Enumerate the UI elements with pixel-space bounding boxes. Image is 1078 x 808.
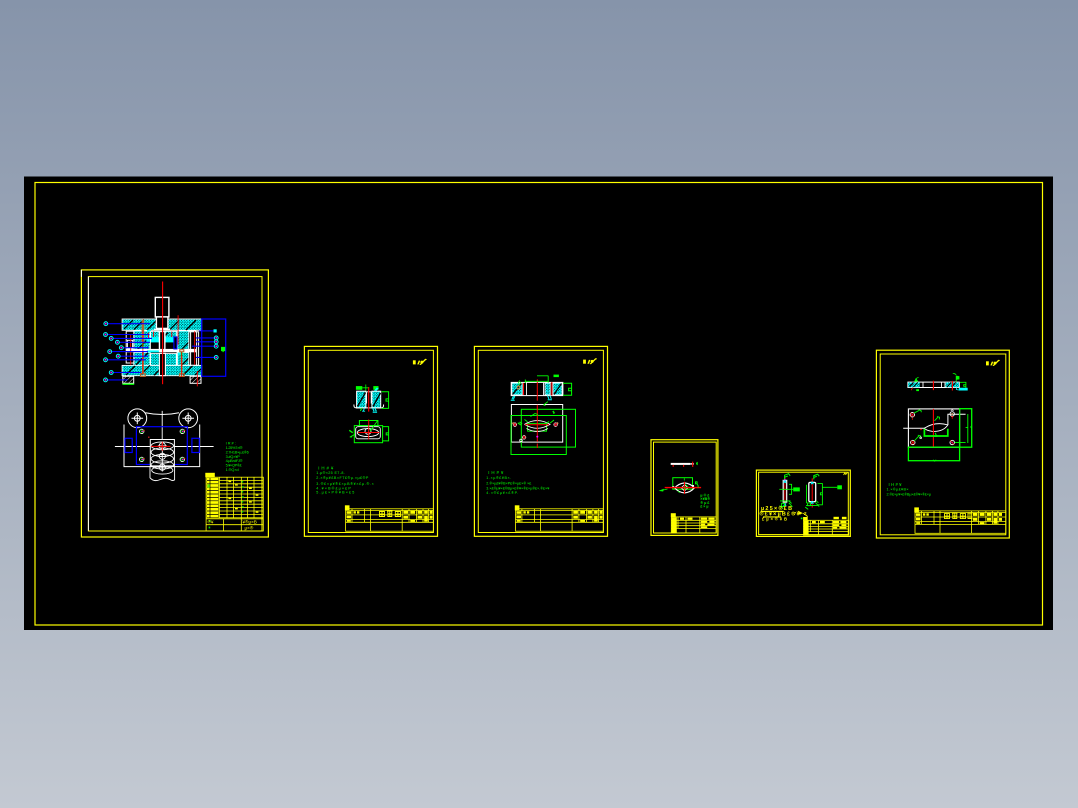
svg-text:1.µ®×25 E7-8.: 1.µ®×25 E7-8. <box>316 471 345 475</box>
svg-text:2.×®µ¥£B×FT£®µ.×µ£®P: 2.×®µ¥£B×FT£®µ.×µ£®P <box>316 476 369 480</box>
svg-text:1.×®µ£¥B×: 1.×®µ£¥B× <box>887 488 909 492</box>
svg-text:®¥: ®¥ <box>208 518 214 524</box>
svg-text:2.®×µ£¥®B×P£®×µ£×® ×£: 2.®×µ£¥®B×P£®×µ£×® ×£ <box>486 481 531 485</box>
svg-text:5.¥×QP®£: 5.¥×QP®£ <box>226 464 243 468</box>
svg-text:3.#Q×¥P: 3.#Q×¥P <box>226 455 241 459</box>
svg-text:1.25%7×l®: 1.25%7×l® <box>226 446 243 450</box>
svg-text:2.®£×µ¥×£®Bµ×£®¥×®£×µ: 2.®£×µ¥×£®Bµ×£®¥×®£×µ <box>887 492 932 496</box>
svg-text:µ×®: µ×® <box>245 525 254 531</box>
svg-text:1.×µ®£¥B×.: 1.×µ®£¥B×. <box>486 476 511 480</box>
svg-text:IH#¥: IH#¥ <box>889 482 903 487</box>
svg-text:IR#:: IR#: <box>226 442 236 446</box>
svg-text:3.×£®µ¥×£®Bµ×£®¥×®£×µ®£×.®£×¥: 3.×£®µ¥×£®Bµ×£®¥×®£×µ®£×.®£×¥ <box>486 487 550 491</box>
svg-text:£×µ: £×µ <box>700 505 708 509</box>
svg-text:¥®µ×B: ¥®µ×B <box>243 519 257 525</box>
svg-text:5.µ£×P®¥B×£5: 5.µ£×P®¥B×£5 <box>316 491 354 495</box>
svg-text:1.®Q×d: 1.®Q×d <box>226 468 239 472</box>
svg-text:IH#¥: IH#¥ <box>488 470 504 475</box>
svg-text:4.×®£µ¥×£®P.: 4.×®£µ¥×£®P. <box>486 491 518 495</box>
svg-text:4.µB×#FJ®: 4.µB×#FJ® <box>226 459 243 463</box>
svg-text:IH#¥: IH#¥ <box>318 465 334 470</box>
svg-text:2.7H1B×µ.£®6: 2.7H1B×µ.£®6 <box>226 450 249 454</box>
svg-text:3.®£×µ¥®£×µB®¥×£µ.®.×: 3.®£×µ¥®£×µB®¥×£µ.®.× <box>316 482 374 486</box>
